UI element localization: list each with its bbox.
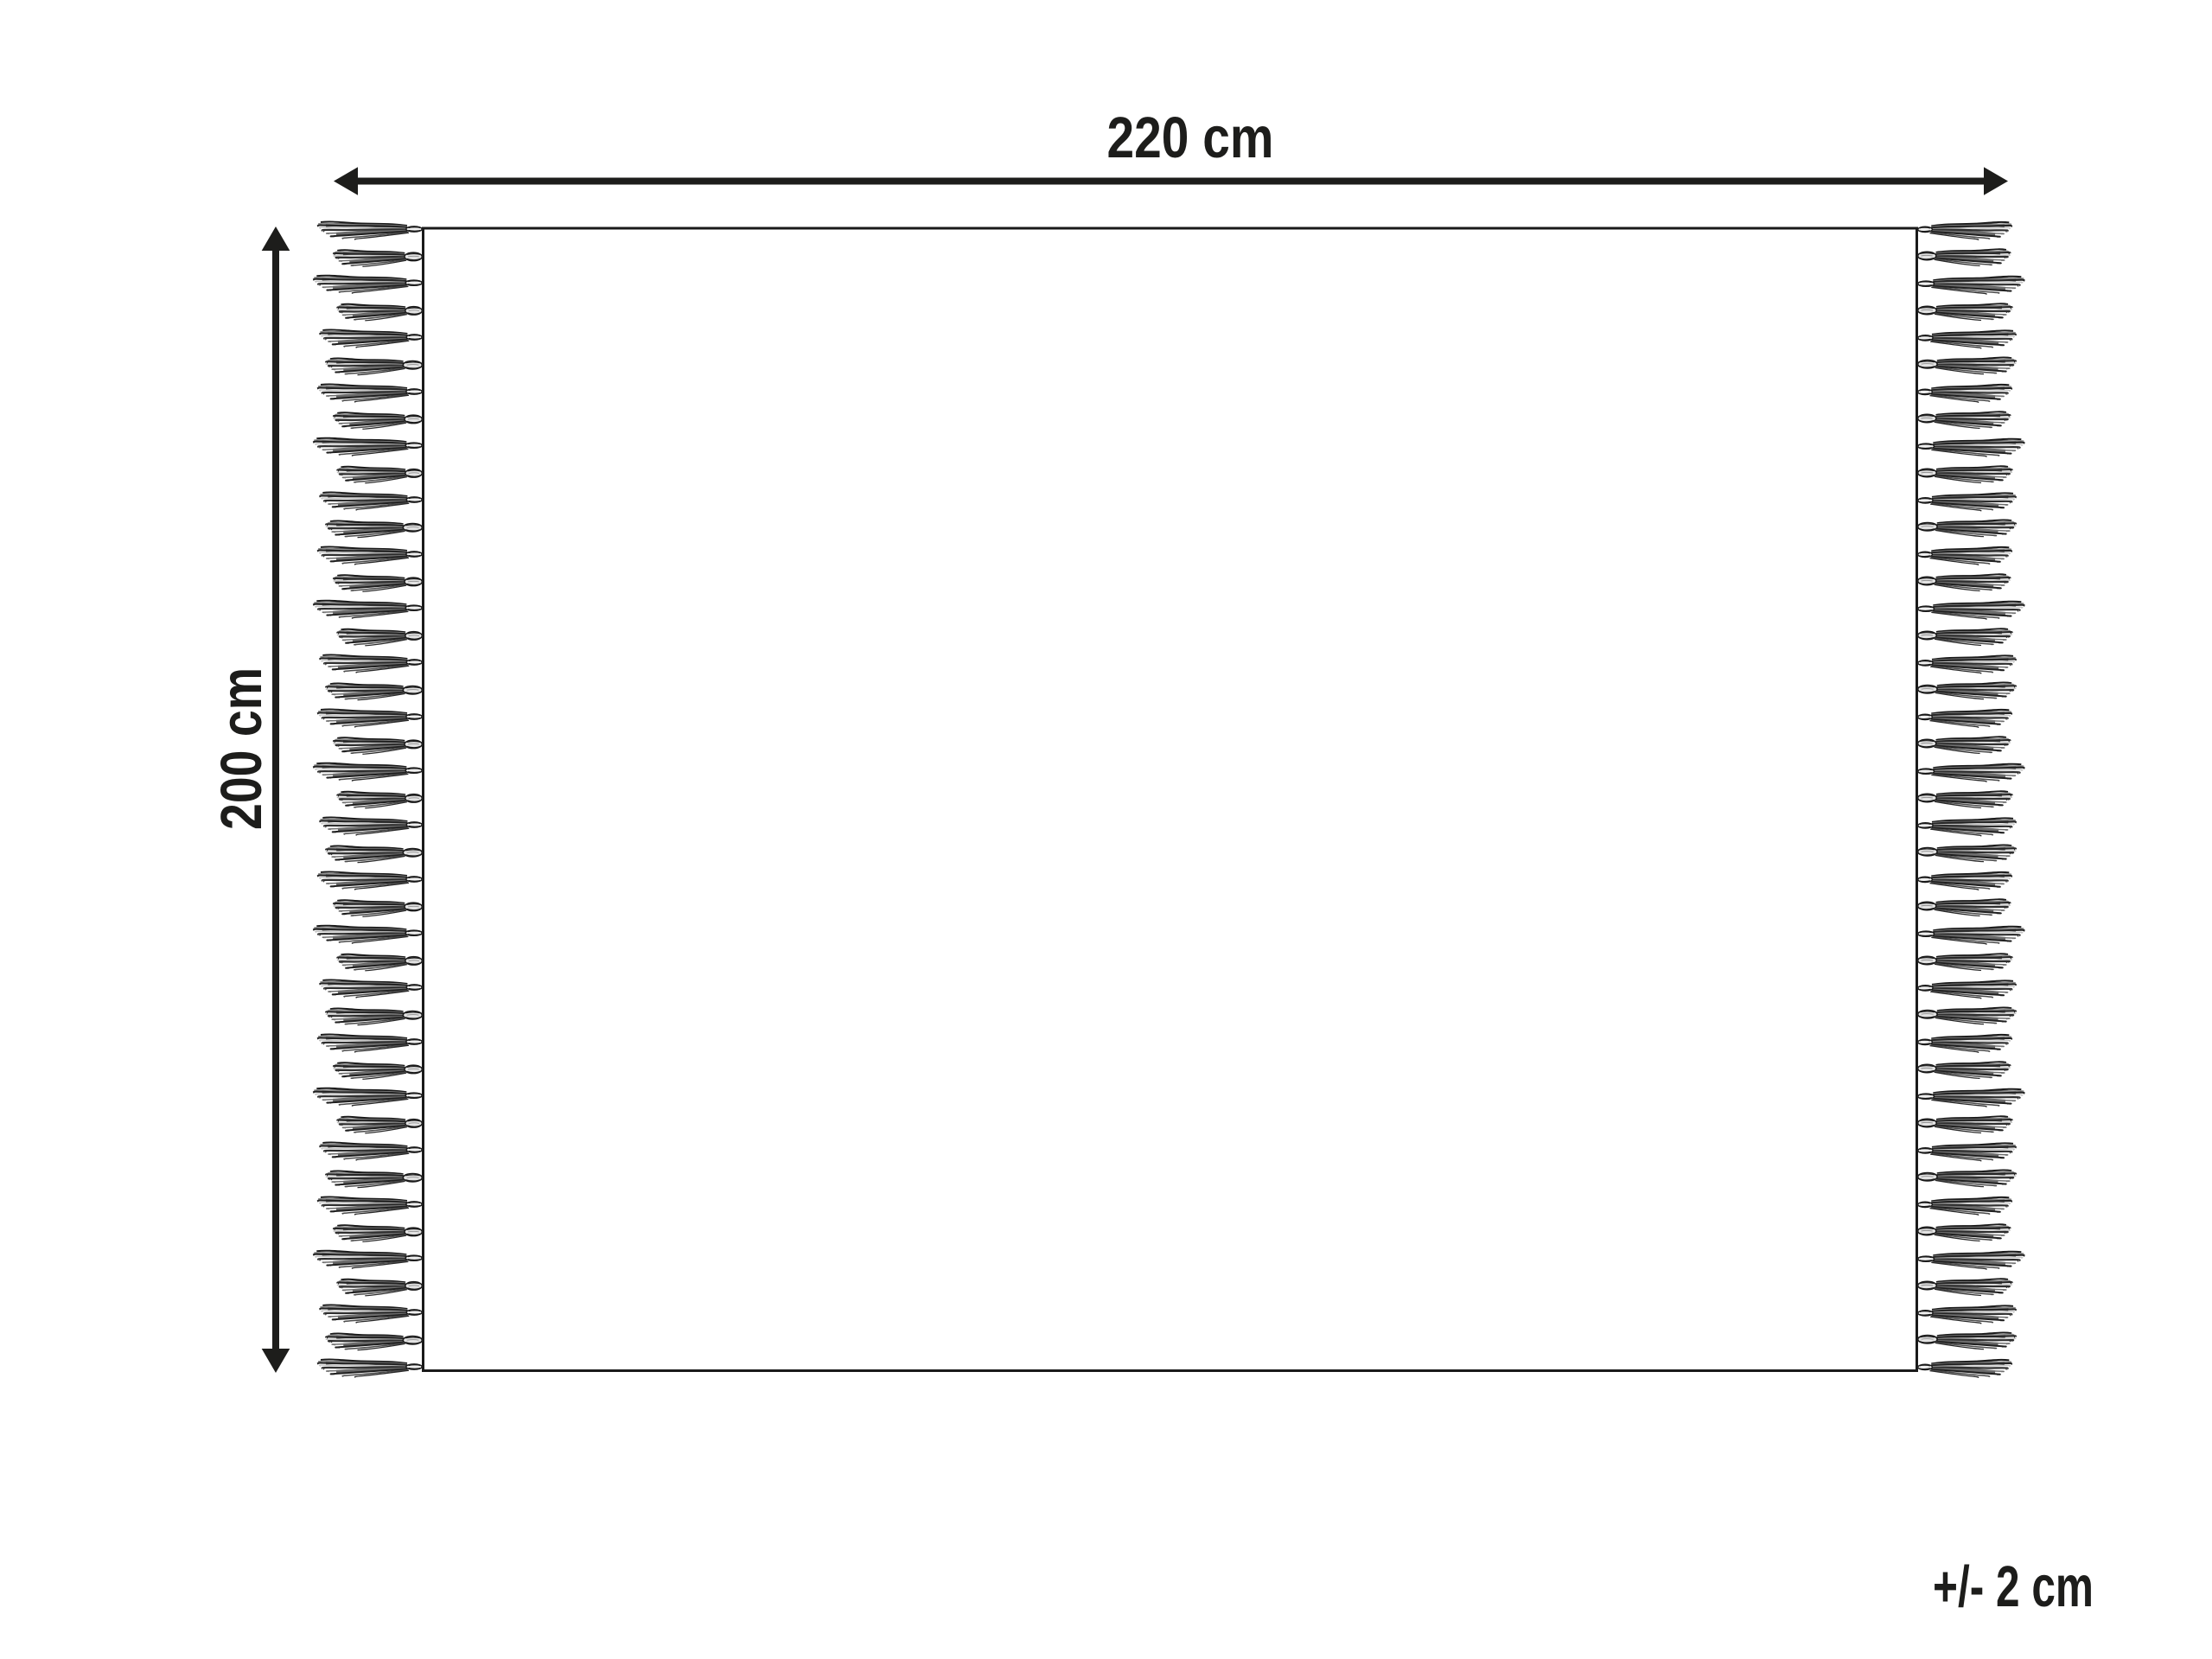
svg-text:+/- 2 cm: +/- 2 cm (1933, 1554, 2094, 1619)
svg-text:200 cm: 200 cm (209, 667, 274, 830)
svg-text:220 cm: 220 cm (1107, 105, 1274, 170)
